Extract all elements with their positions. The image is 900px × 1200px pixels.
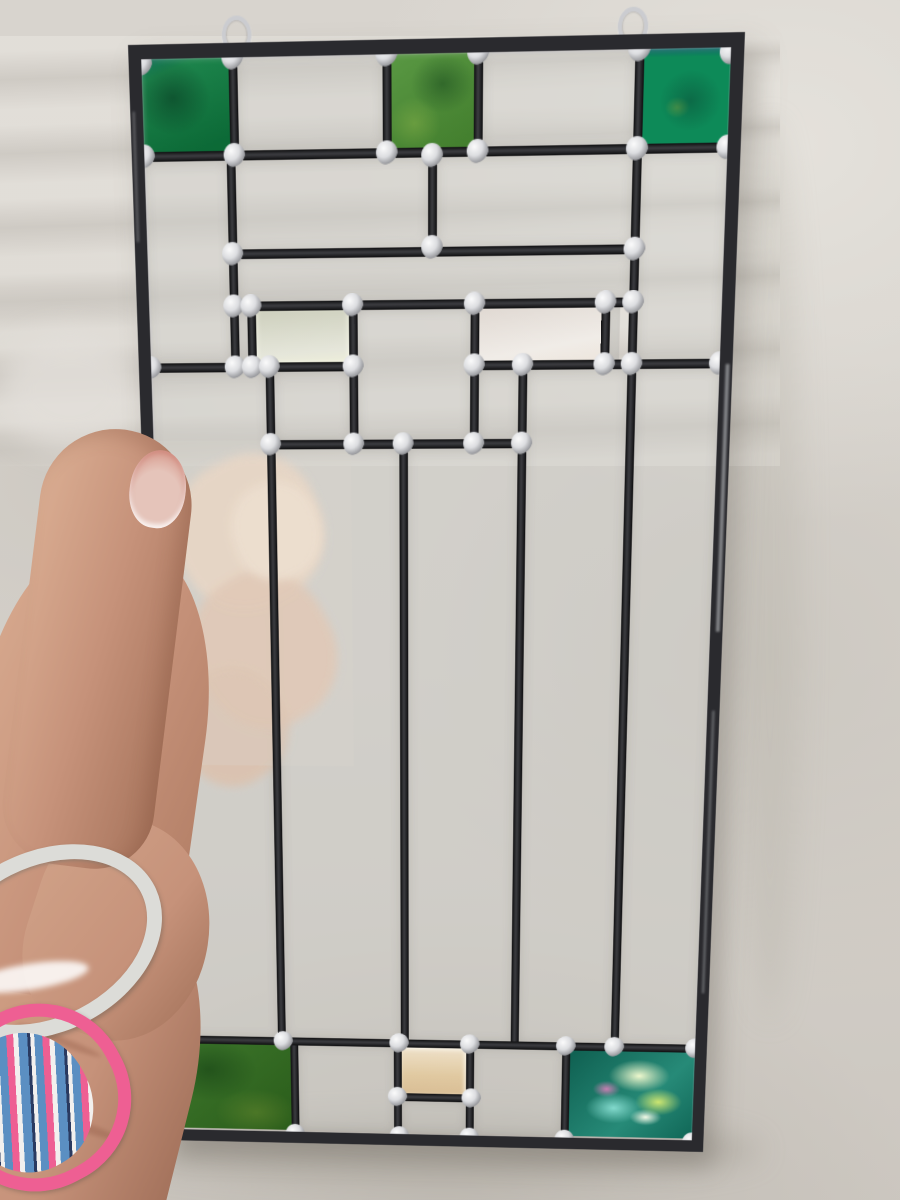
stained-glass-panel	[128, 32, 745, 1152]
backdrop-wrinkle	[740, 120, 800, 1020]
zinc-frame	[128, 32, 745, 1152]
backdrop-wrinkle	[0, 330, 140, 450]
photo	[0, 0, 900, 1200]
